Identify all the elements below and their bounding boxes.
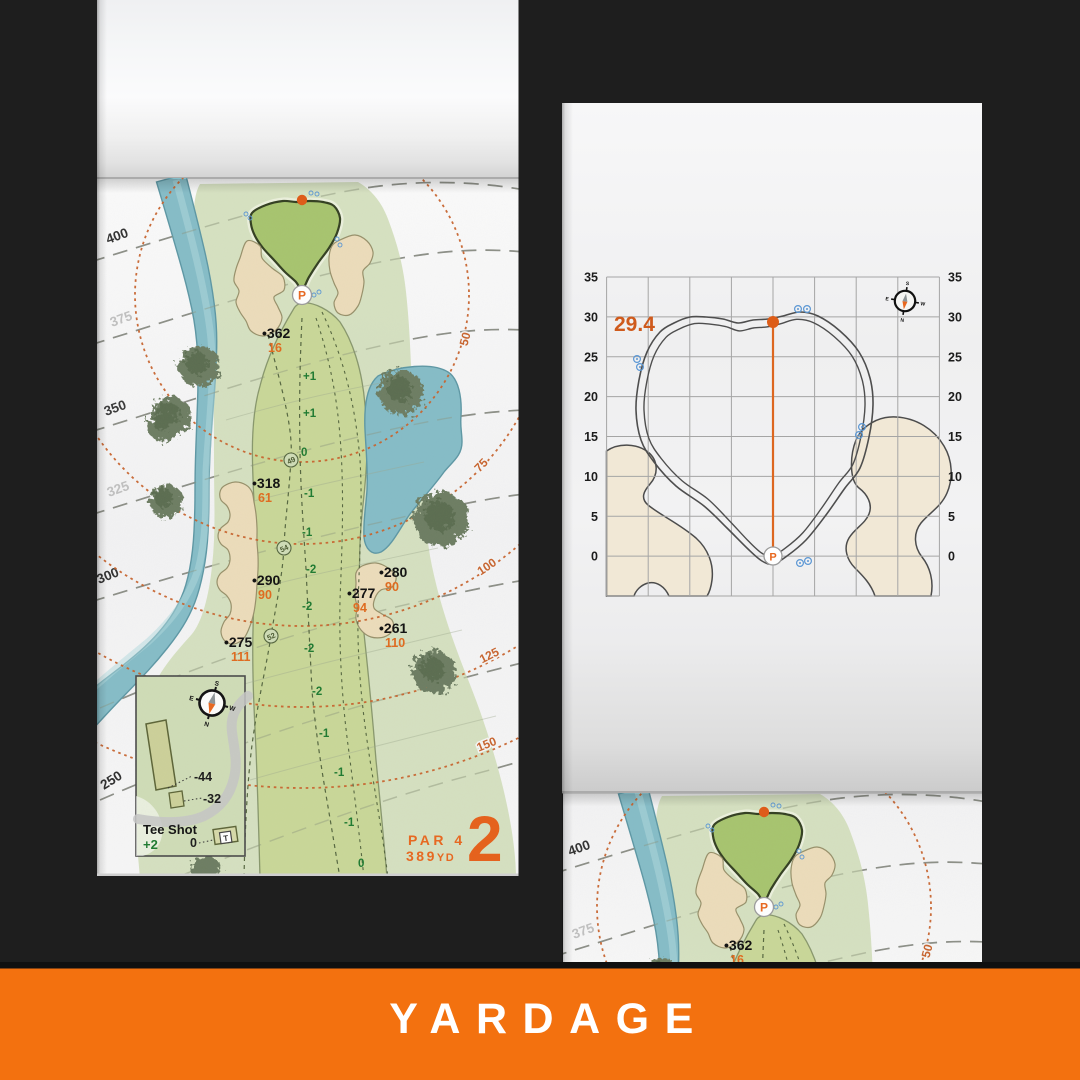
svg-text:P: P bbox=[769, 552, 776, 564]
svg-text:35: 35 bbox=[948, 271, 962, 285]
svg-text:29.4: 29.4 bbox=[614, 313, 655, 336]
svg-text:5: 5 bbox=[591, 510, 598, 524]
svg-text:35: 35 bbox=[584, 271, 598, 285]
svg-text:15: 15 bbox=[584, 430, 598, 444]
svg-text:25: 25 bbox=[584, 350, 598, 364]
svg-text:5: 5 bbox=[948, 510, 955, 524]
svg-text:15: 15 bbox=[948, 430, 962, 444]
svg-text:10: 10 bbox=[948, 470, 962, 484]
svg-text:20: 20 bbox=[948, 390, 962, 404]
svg-text:10: 10 bbox=[584, 470, 598, 484]
svg-text:25: 25 bbox=[948, 350, 962, 364]
svg-text:0: 0 bbox=[591, 550, 598, 564]
svg-text:30: 30 bbox=[948, 310, 962, 324]
svg-text:30: 30 bbox=[584, 310, 598, 324]
svg-text:YARDAGE: YARDAGE bbox=[389, 995, 709, 1043]
svg-text:0: 0 bbox=[948, 550, 955, 564]
svg-text:20: 20 bbox=[584, 390, 598, 404]
